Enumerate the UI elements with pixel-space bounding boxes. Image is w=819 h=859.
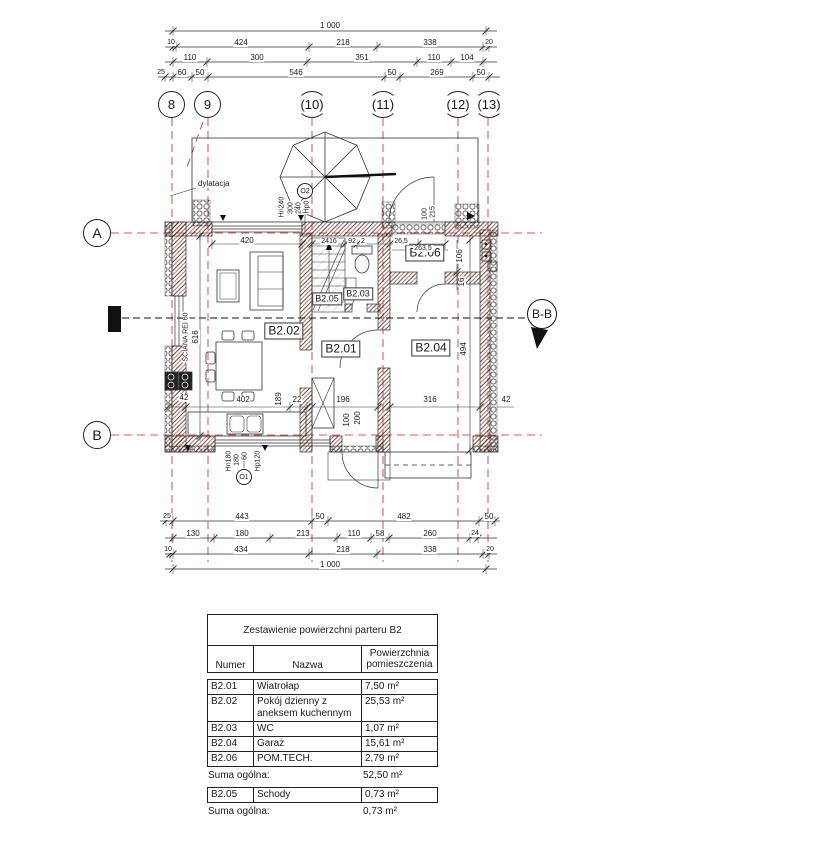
opening-dim: Hn240	[279, 196, 286, 219]
cell-number: B2.04	[208, 737, 253, 751]
sum-value: 52,50 m²	[363, 770, 402, 781]
dim-label: 50	[476, 69, 487, 77]
grid-bubble-8: 8	[158, 91, 185, 118]
axis-label: B	[92, 427, 101, 443]
sum-label: Suma ogólna:	[208, 806, 270, 817]
dim-label: 1 000	[319, 561, 341, 569]
cell-area: 7,50 m²	[362, 680, 437, 694]
dim-label: 424	[233, 39, 248, 47]
ref-label: O2	[300, 188, 309, 195]
col-header-nazwa: Nazwa	[253, 646, 362, 672]
dim-label: 10	[163, 546, 173, 553]
col-header-powierzchnia: Powierzchnia pomieszczenia	[362, 646, 437, 672]
dim-label: 16	[458, 277, 466, 288]
dim-label: 22	[292, 396, 303, 404]
section-marker-bb: B-B	[527, 299, 557, 329]
table-row: B2.02 Pokój dzienny z aneksem kuchennym …	[208, 694, 437, 721]
dim-label: 189	[275, 391, 283, 406]
cell-name: Garaż	[253, 737, 362, 751]
dim-label: 420	[239, 237, 254, 245]
grid-bubble-13: (13)	[474, 91, 504, 118]
dim-label: 50	[484, 513, 495, 521]
dim-label: 616	[192, 329, 200, 344]
dim-label: 263,5	[413, 245, 433, 252]
dim-label: 110	[427, 54, 442, 62]
ref-circle-o2: O2	[297, 183, 313, 199]
dim-label: 434	[233, 546, 248, 554]
grid-bubble-label: (13)	[477, 97, 500, 112]
grid-bubble-label: (12)	[446, 97, 469, 112]
grid-bubble-label: 8	[168, 97, 175, 112]
plan-drawing	[0, 0, 819, 600]
dim-label: 130	[185, 530, 200, 538]
dim-label: 443	[234, 513, 249, 521]
dim-label: 104	[459, 54, 474, 62]
cell-area: 2,79 m²	[362, 752, 437, 766]
dim-label: 2416	[320, 238, 338, 245]
opening-dim: 300	[288, 201, 295, 215]
dim-label: 260	[422, 530, 437, 538]
grid-bubble-label: (10)	[300, 97, 323, 112]
dim-label: 110	[347, 530, 362, 538]
grid-bubble-label: 9	[204, 97, 211, 112]
cell-number: B2.01	[208, 680, 253, 694]
dim-label: 494	[460, 341, 468, 356]
axis-label: A	[92, 225, 101, 241]
opening-dim: 240	[296, 201, 303, 215]
opening-dim: Hp120	[255, 450, 262, 473]
axis-bubble-a: A	[83, 219, 111, 247]
dim-label: 60	[177, 69, 188, 77]
cell-name: Pokój dzienny z aneksem kuchennym	[253, 695, 362, 721]
ref-circle-o1: O1	[236, 469, 252, 485]
area-table-stairs: B2.05 Schody 0,73 m² Suma ogólna: 0,73 m…	[207, 787, 438, 821]
dim-label: 269	[429, 69, 444, 77]
room-label-b205: B2.05	[312, 292, 342, 305]
dim-label: 546	[288, 69, 303, 77]
axis-bubble-b: B	[83, 421, 111, 449]
section-label: B-B	[532, 307, 552, 321]
cell-name: Schody	[253, 788, 362, 802]
grid-bubble-9: 9	[194, 91, 221, 118]
table-row: B2.05 Schody 0,73 m²	[208, 788, 437, 802]
grid-bubble-12: (12)	[443, 91, 473, 118]
room-label-b203: B2.03	[343, 287, 373, 300]
opening-dim: Hp0	[304, 200, 311, 215]
cell-area: 25,53 m²	[362, 695, 437, 721]
dylatacja-label: dylatacja	[198, 180, 230, 188]
dim-label: 24	[470, 530, 480, 537]
cell-number: B2.02	[208, 695, 253, 721]
table-row: B2.04 Garaż 15,61 m²	[208, 736, 437, 751]
dim-label: 50	[195, 69, 206, 77]
dim-label: 26,5	[393, 238, 409, 245]
dim-chains-top	[158, 26, 500, 82]
table-row: B2.03 WC 1,07 m²	[208, 721, 437, 736]
cell-name: Wiatrołap	[253, 680, 362, 694]
table-title: Zestawienie powierzchni parteru B2	[208, 615, 437, 645]
stairs-table-body: B2.05 Schody 0,73 m²	[207, 787, 438, 803]
dim-label: 338	[422, 546, 437, 554]
dim-label: 25	[156, 69, 166, 76]
table-row: B2.01 Wiatrołap 7,50 m²	[208, 680, 437, 694]
dim-label: 300	[249, 54, 264, 62]
table-row: B2.06 POM.TECH. 2,79 m²	[208, 751, 437, 766]
ref-label: O1	[239, 474, 248, 481]
door-dim: 100	[422, 207, 429, 221]
dim-label: 180	[234, 530, 249, 538]
area-table-body: B2.01 Wiatrołap 7,50 m² B2.02 Pokój dzie…	[207, 679, 438, 767]
door-dim: 215	[430, 205, 437, 219]
dim-label: 25	[162, 513, 172, 520]
area-table-header: Zestawienie powierzchni parteru B2 Numer…	[207, 614, 438, 673]
dim-label: 50	[387, 69, 398, 77]
dim-label: 20	[485, 546, 495, 553]
dim-label: 58	[375, 530, 386, 538]
dim-label: 196	[335, 396, 350, 404]
sum-row: Suma ogólna: 52,50 m²	[207, 769, 438, 785]
grid-bubble-label: (11)	[372, 97, 394, 112]
room-label-b202: B2.02	[264, 323, 303, 340]
dim-label: 316	[422, 396, 437, 404]
dim-label: 42	[179, 394, 190, 402]
dim-label: 50	[315, 513, 326, 521]
wc-fixtures	[346, 246, 372, 290]
dim-label: 218	[335, 39, 350, 47]
dim-label: 351	[354, 54, 369, 62]
dim-label: 100	[343, 412, 351, 427]
dim-label: 110	[183, 54, 198, 62]
dim-label: 106	[456, 248, 464, 263]
cell-number: B2.03	[208, 722, 253, 736]
floor-plan-canvas: 8 9 (10) (11) (12) (13) A B B-B O2 O1 B2…	[0, 0, 819, 859]
col-header-numer: Numer	[208, 646, 253, 672]
sum-row: Suma ogólna: 0,73 m²	[207, 805, 438, 821]
dim-label: 213	[295, 530, 310, 538]
cell-number: B2.06	[208, 752, 253, 766]
dim-label: 20	[484, 39, 494, 46]
dim-label: 1 000	[319, 22, 341, 30]
dim-label: 482	[396, 513, 411, 521]
opening-dim: 180	[234, 453, 241, 467]
sum-value: 0,73 m²	[363, 806, 397, 817]
cell-area: 0,73 m²	[362, 788, 437, 802]
opening-dim: 60	[242, 451, 249, 461]
dim-label: 218	[335, 546, 350, 554]
cell-area: 15,61 m²	[362, 737, 437, 751]
grid-bubble-11: (11)	[368, 91, 398, 118]
dim-label: 2	[360, 238, 366, 245]
cell-number: B2.05	[208, 788, 253, 802]
wall-annotation: SCIANA REI 60	[183, 311, 190, 362]
area-table-main: Zestawienie powierzchni parteru B2 Numer…	[207, 614, 438, 785]
dim-label: 402	[235, 396, 250, 404]
cell-name: POM.TECH.	[253, 752, 362, 766]
cell-name: WC	[253, 722, 362, 736]
cell-area: 1,07 m²	[362, 722, 437, 736]
opening-dim: Hn180	[226, 450, 233, 473]
dim-label: 200	[354, 410, 362, 425]
sum-label: Suma ogólna:	[208, 770, 270, 781]
grid-bubble-10: (10)	[297, 91, 327, 118]
room-label-b204: B2.04	[411, 340, 450, 357]
dim-label: 42	[501, 396, 512, 404]
dim-label: 92	[347, 238, 357, 245]
room-label-b201: B2.01	[321, 341, 360, 358]
dim-label: 338	[422, 39, 437, 47]
dim-label: 10	[166, 39, 176, 46]
